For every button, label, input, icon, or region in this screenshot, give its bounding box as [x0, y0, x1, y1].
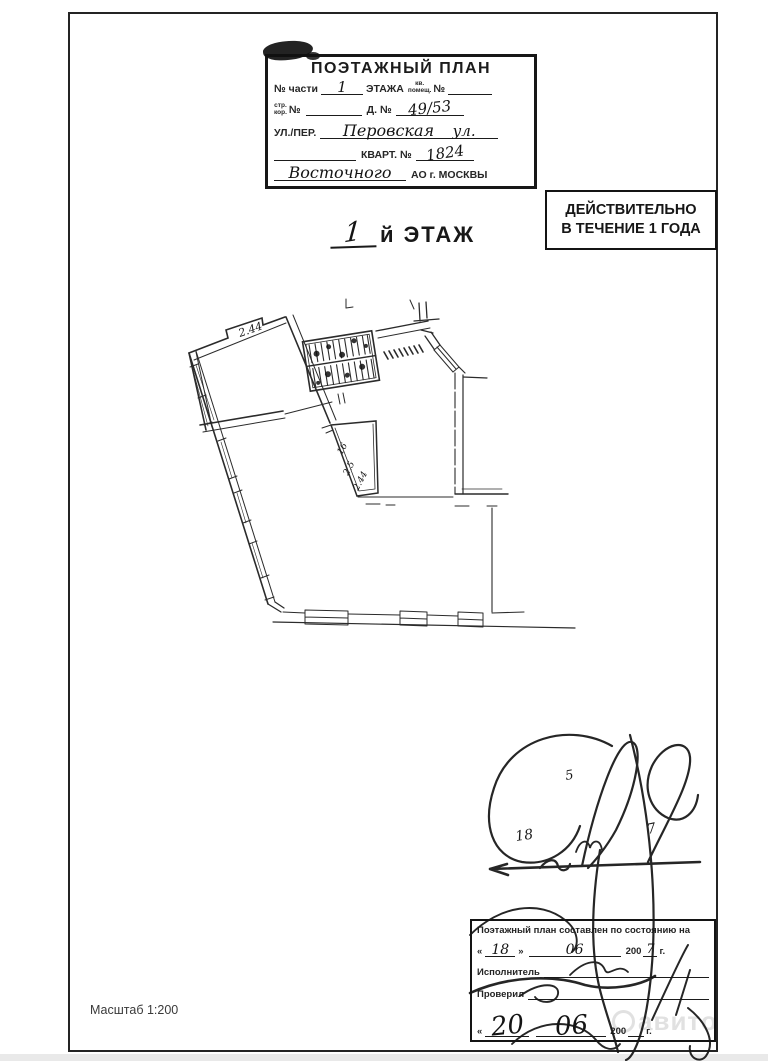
label-etazha: ЭТАЖА: [366, 83, 404, 95]
perimeter-walls: [189, 351, 575, 628]
floor-title: 1 й ЭТАЖ: [330, 220, 475, 248]
footer-title: Поэтажный план составлен по состоянию на: [477, 925, 690, 936]
footer-checked-row: Проверил: [477, 989, 709, 1000]
field-checked-signature: [528, 999, 709, 1000]
field-part-number: 1: [321, 81, 363, 95]
scan-edge-strip: [0, 1054, 768, 1061]
quote-close-1: »: [518, 946, 523, 957]
field-year-1: 7: [643, 943, 657, 957]
corridor-top-right: [376, 302, 465, 373]
field-executor-signature: [544, 977, 709, 978]
label-pomesh: помещ.: [408, 87, 432, 94]
header-row-kvartal: КВАРТ. № 1824: [274, 147, 528, 161]
ink-blot-small: [306, 52, 320, 60]
value-day-2: 20: [490, 1015, 525, 1036]
label-no-1: №: [433, 83, 445, 95]
value-kvartal: 1824: [425, 144, 464, 161]
label-kor: кор.: [274, 109, 287, 116]
quote-open-1: «: [477, 946, 482, 957]
stairwell: [303, 331, 380, 391]
field-month-1: 06: [529, 944, 621, 957]
label-kvart-no: КВАРТ. №: [361, 149, 412, 161]
field-year-2: [628, 1036, 644, 1037]
value-month-2: 06: [554, 1016, 588, 1036]
footer-date1-row: « 18 » 06 200 7 г.: [477, 943, 709, 957]
field-month-2: 06: [536, 1017, 606, 1037]
footer-form-box: Поэтажный план составлен по состоянию на…: [470, 919, 716, 1042]
scale-label: Масштаб 1:200: [90, 1003, 178, 1017]
footer-executor-row: Исполнитель: [477, 967, 709, 978]
stamp-line-1: ДЕЙСТВИТЕЛЬНО: [547, 201, 715, 220]
header-row-street: УЛ./ПЕР. Перовская ул.: [274, 125, 528, 139]
label-kv-pomesh: кв. помещ.: [408, 81, 432, 94]
field-okrug: Восточного: [274, 167, 406, 181]
header-form-box: ПОЭТАЖНЫЙ ПЛАН № части 1 ЭТАЖА кв. помещ…: [265, 54, 537, 189]
field-building: [306, 115, 362, 116]
label-g-2: г.: [646, 1026, 652, 1037]
field-house-number: 49/53: [396, 102, 464, 116]
quote-open-2: «: [477, 1026, 482, 1037]
label-checked: Проверил: [477, 989, 524, 1000]
footer-date2-row: « 20 06 200 г.: [477, 1017, 709, 1037]
label-year-prefix-2: 200: [610, 1026, 626, 1037]
dim-label-b: 2.5: [341, 460, 357, 478]
room-middle: [322, 421, 453, 505]
value-year-1: 7: [646, 942, 654, 957]
label-str-kor: стр. кор.: [274, 103, 287, 116]
label-g-1: г.: [659, 946, 665, 957]
misc-marks: [338, 299, 414, 404]
scanned-floorplan-document: { "doc": { "header_box": { "title": "ПОЭ…: [0, 0, 768, 1061]
header-row-part: № части 1 ЭТАЖА кв. помещ. №: [274, 81, 528, 95]
value-part-number: 1: [337, 78, 347, 96]
value-street-suffix: ул.: [453, 122, 476, 140]
field-apartment-number: [448, 94, 492, 95]
floor-title-text: й ЭТАЖ: [380, 222, 475, 248]
label-year-prefix-1: 200: [626, 946, 642, 957]
field-street: Перовская ул.: [320, 125, 498, 139]
floor-number: 1: [343, 219, 362, 248]
label-ao-moskvy: АО г. МОСКВЫ: [411, 169, 487, 181]
header-row-building: стр. кор. № Д. № 49/53: [274, 102, 528, 116]
document-title: ПОЭТАЖНЫЙ ПЛАН: [268, 60, 534, 78]
value-house-number: 49/53: [408, 100, 452, 116]
field-kvartal: 1824: [416, 147, 474, 161]
floor-plan-drawing: 2.44 16 2.5 2.44: [160, 290, 620, 642]
field-day-2: 20: [485, 1017, 529, 1037]
label-ul-per: УЛ./ПЕР.: [274, 127, 316, 139]
label-no-2: №: [289, 104, 301, 116]
floor-number-underline: 1: [330, 219, 377, 249]
right-walls: [455, 373, 524, 613]
validity-stamp: ДЕЙСТВИТЕЛЬНО В ТЕЧЕНИЕ 1 ГОДА: [545, 190, 717, 250]
label-no-chasti: № части: [274, 83, 318, 95]
field-blank: [274, 160, 356, 161]
value-day-1: 18: [491, 942, 509, 958]
value-okrug: Восточного: [289, 163, 392, 182]
footer-title-row: Поэтажный план составлен по состоянию на: [477, 925, 709, 936]
header-row-okrug: Восточного АО г. МОСКВЫ: [274, 167, 528, 181]
field-day-1: 18: [485, 944, 515, 957]
label-executor: Исполнитель: [477, 967, 540, 978]
value-month-1: 06: [566, 942, 584, 958]
stamp-line-2: В ТЕЧЕНИЕ 1 ГОДА: [547, 220, 715, 239]
label-d-no: Д. №: [367, 104, 392, 116]
value-street: Перовская: [343, 121, 434, 140]
